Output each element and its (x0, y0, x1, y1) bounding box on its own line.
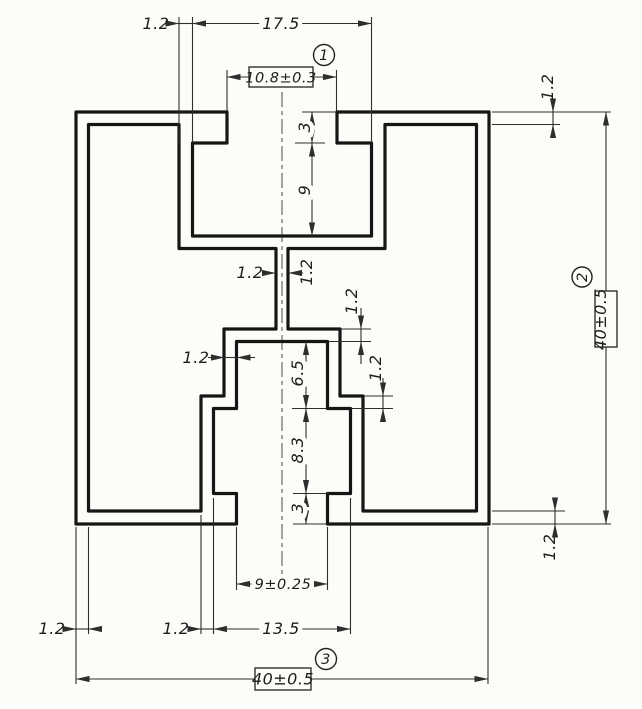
dim-lower-opening-depth: 3 (288, 503, 307, 514)
dim-lower-cavity-width: 13.5 (262, 619, 300, 638)
dim-lower-mid-height: 8.3 (288, 437, 307, 464)
dim-lower-upper-height: 6.5 (288, 360, 307, 387)
callout-labels: 1 2 3 (319, 48, 591, 668)
dim-overall-width: 40±0.5 (252, 670, 314, 689)
dim-lower-step-wall: 1.2 (366, 355, 385, 382)
dimension-lines (63, 24, 606, 680)
dim-top-left-wall: 1.2 (143, 14, 170, 33)
dimension-labels: 1.2 17.5 10.8±0.3 3 9 1.2 1.2 1.2 1.2 1.… (39, 14, 610, 689)
dim-top-opening-depth: 3 (295, 122, 314, 133)
inner-contour-left-chamber (89, 125, 277, 512)
dim-top-cavity-width: 17.5 (262, 14, 300, 33)
dim-lower-top-wall: 1.2 (342, 288, 361, 315)
technical-drawing-sheet: 1.2 17.5 10.8±0.3 3 9 1.2 1.2 1.2 1.2 1.… (0, 0, 642, 709)
inner-contour-right-chamber (288, 125, 477, 512)
dim-lower-outer-wall: 1.2 (163, 619, 190, 638)
callout-3: 3 (321, 652, 331, 668)
dim-bottom-wall-right: 1.2 (540, 534, 559, 561)
dim-left-wall: 1.2 (39, 619, 66, 638)
callout-2: 2 (575, 272, 591, 282)
extension-lines (76, 17, 611, 684)
dim-overall-height: 40±0.5 (591, 288, 610, 350)
dim-web-left: 1.2 (237, 263, 264, 282)
dim-top-wall-right: 1.2 (538, 74, 557, 101)
profile-drawing: 1.2 17.5 10.8±0.3 3 9 1.2 1.2 1.2 1.2 1.… (0, 0, 642, 709)
dim-web-right: 1.2 (297, 259, 316, 286)
dim-top-cavity-depth: 9 (295, 185, 314, 196)
dim-lower-side-wall: 1.2 (183, 348, 210, 367)
dim-lower-opening-width: 9±0.25 (255, 577, 312, 593)
dim-top-opening-width: 10.8±0.3 (245, 71, 317, 87)
callout-1: 1 (319, 48, 329, 64)
